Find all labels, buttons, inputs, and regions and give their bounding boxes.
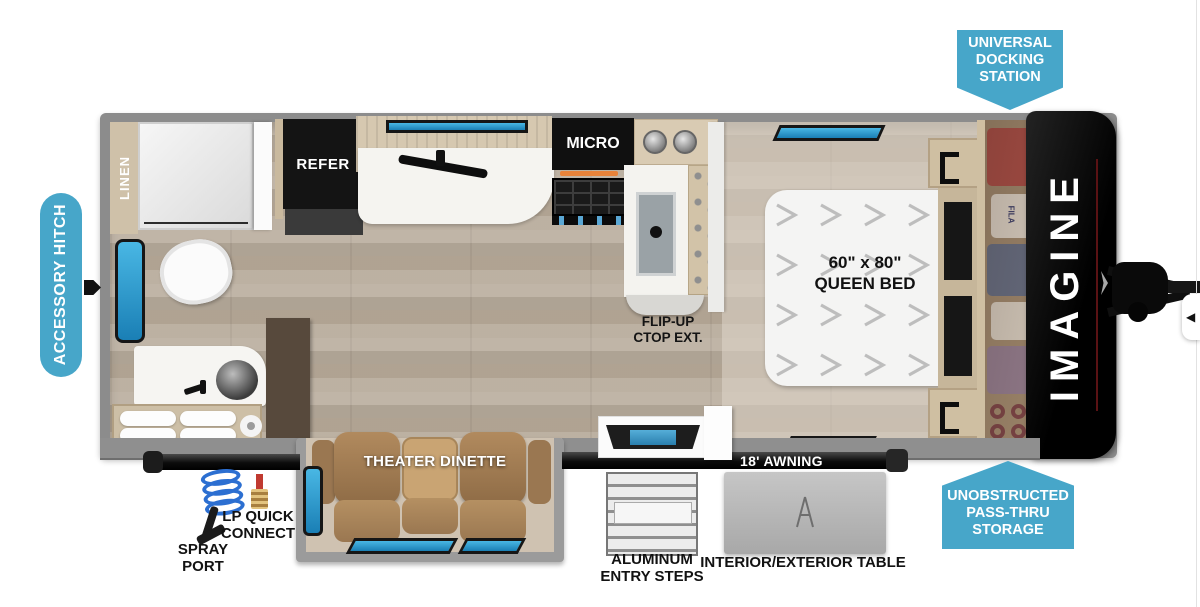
theater-seat-cushion (402, 498, 458, 534)
shower-door (254, 122, 272, 230)
bathroom-sink (216, 360, 258, 400)
slideout-window (458, 538, 527, 554)
refer-lower-cabinet (285, 209, 363, 235)
sink-bowl (673, 130, 697, 154)
steps-landing (614, 502, 692, 524)
exterior-table (724, 472, 886, 554)
pass-thru-storage-badge: UNOBSTRUCTED PASS-THRU STORAGE (942, 461, 1074, 549)
theater-dinette-label: THEATER DINETTE (320, 453, 550, 470)
kitchen-wall (708, 122, 724, 312)
exterior-table-label: INTERIOR/EXTERIOR TABLE (700, 554, 906, 571)
bedroom-window-top (772, 125, 885, 141)
floorplan-viewer: LINEN REFER MICRO FLIP-UP CTO (0, 0, 1200, 607)
refrigerator: REFER (283, 119, 363, 209)
microwave-handle (560, 171, 618, 176)
lp-connect-fitting (251, 489, 268, 509)
bed-label: 60" x 80" QUEEN BED (765, 252, 965, 294)
lp-quick-connect-label: LP QUICK CONNECT (206, 508, 310, 542)
stove-cooktop (552, 178, 628, 216)
bathroom-window (115, 239, 145, 343)
entry-steps (606, 472, 698, 556)
latch-icon (940, 152, 959, 184)
bathroom-wardrobe (266, 318, 310, 444)
spray-port-label: SPRAY PORT (156, 541, 250, 575)
awning-label: 18' AWNING (740, 453, 870, 469)
cabinet-slot (944, 296, 972, 376)
micro-label: MICRO (566, 135, 619, 153)
accessory-hitch-badge: ACCESSORY HITCH (40, 193, 82, 377)
shower (138, 122, 254, 230)
toilet-paper-roll (240, 415, 262, 437)
cabinet-slot (944, 202, 972, 280)
sink-bowl (643, 130, 667, 154)
refer-label: REFER (296, 156, 349, 173)
entry-wall (704, 406, 732, 460)
awning-end-cap (143, 451, 163, 473)
linen-cabinet: LINEN (110, 122, 138, 234)
towel (180, 411, 236, 426)
kitchen-faucet-base (436, 150, 445, 166)
microwave: MICRO (552, 118, 634, 170)
kitchen-counter (358, 148, 554, 224)
awning-end-cap (886, 449, 908, 472)
front-cap: IMAGINE (1026, 111, 1116, 459)
kitchen-window (386, 120, 528, 133)
linen-label: LINEN (117, 156, 132, 200)
kitchen-sink-faucet (650, 226, 662, 238)
flip-up-ctop-label: FLIP-UP CTOP EXT. (596, 314, 740, 346)
awning-roller-left (146, 454, 300, 470)
compass-logo-icon (790, 493, 820, 533)
carousel-prev-button[interactable]: ◀ (1182, 294, 1200, 340)
tongue-jack-wheel (1128, 302, 1148, 322)
theater-seat-cushion (460, 500, 526, 542)
refer-trim (275, 119, 283, 219)
entry-door-window (630, 430, 676, 445)
stove-drawer (552, 216, 628, 225)
prep-sink-cabinet (634, 119, 718, 165)
imagine-brand: IMAGINE (1036, 111, 1094, 459)
entry-steps-label: ALUMINUM ENTRY STEPS (586, 551, 718, 585)
towel (120, 411, 176, 426)
slideout-window (346, 538, 459, 554)
latch-icon (940, 402, 959, 434)
universal-docking-badge: UNIVERSAL DOCKING STATION (957, 30, 1063, 110)
prev-arrow-icon: ◀ (1186, 310, 1195, 324)
bathroom-faucet-spout (200, 380, 206, 394)
theater-seat-cushion (334, 500, 400, 542)
armrest (528, 440, 551, 504)
accessory-hitch-receiver (84, 280, 101, 295)
counter-extension-edge (626, 295, 704, 315)
wardrobe-frame (977, 120, 985, 452)
